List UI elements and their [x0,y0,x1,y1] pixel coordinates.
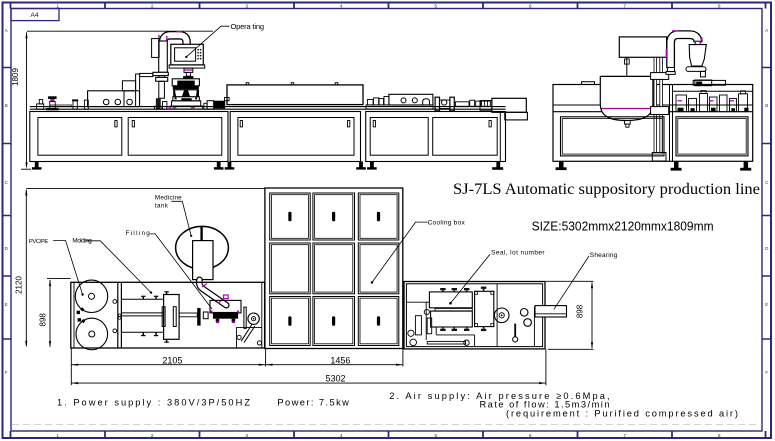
svg-text:5302: 5302 [325,374,345,384]
svg-text:(requirement : Purified compre: (requirement : Purified compressed air) [506,408,738,418]
svg-text:B: B [765,103,768,108]
svg-text:Seal, lot number: Seal, lot number [491,249,545,256]
svg-text:SJ-7LS Automatic suppository p: SJ-7LS Automatic suppository production … [453,181,760,198]
svg-text:F: F [765,370,768,375]
svg-text:2105: 2105 [162,355,182,365]
svg-text:PVC/PE: PVC/PE [29,239,48,245]
svg-text:4: 4 [340,3,343,9]
svg-text:3: 3 [245,3,248,9]
svg-text:2: 2 [151,433,154,439]
svg-text:5: 5 [434,3,437,9]
svg-text:A4: A4 [30,12,39,19]
svg-text:Filling: Filling [126,230,151,237]
svg-text:Cooling box: Cooling box [428,219,466,226]
svg-text:E: E [5,302,8,307]
svg-text:F: F [5,370,8,375]
svg-text:3: 3 [245,433,248,439]
svg-text:A: A [5,28,8,33]
svg-text:Opera ting: Opera ting [231,22,265,31]
svg-text:SIZE:5302mmx2120mmx1809mm: SIZE:5302mmx2120mmx1809mm [532,219,714,234]
svg-text:Shearing: Shearing [590,252,618,259]
svg-text:E: E [765,302,768,307]
svg-text:A: A [765,28,768,33]
svg-text:B: B [5,103,8,108]
svg-text:4: 4 [340,433,343,439]
svg-text:5: 5 [434,433,437,439]
svg-text:Molding: Molding [72,238,92,245]
svg-text:Power: 7.5kw: Power: 7.5kw [277,398,349,408]
svg-text:1. Power supply : 380V/3P/50HZ: 1. Power supply : 380V/3P/50HZ [57,398,250,408]
svg-text:6: 6 [529,433,532,439]
svg-text:tank: tank [155,203,169,210]
svg-text:8: 8 [718,433,721,439]
svg-text:7: 7 [623,433,626,439]
svg-text:1809: 1809 [11,68,20,86]
svg-text:898: 898 [38,313,47,327]
svg-text:Medicine: Medicine [155,195,182,202]
svg-text:1456: 1456 [330,355,350,365]
svg-text:6: 6 [529,3,532,9]
svg-text:2120: 2120 [15,276,24,294]
svg-text:898: 898 [576,304,585,318]
svg-text:8: 8 [718,3,721,9]
svg-text:1: 1 [56,433,59,439]
svg-text:2: 2 [151,3,154,9]
svg-text:7: 7 [623,3,626,9]
